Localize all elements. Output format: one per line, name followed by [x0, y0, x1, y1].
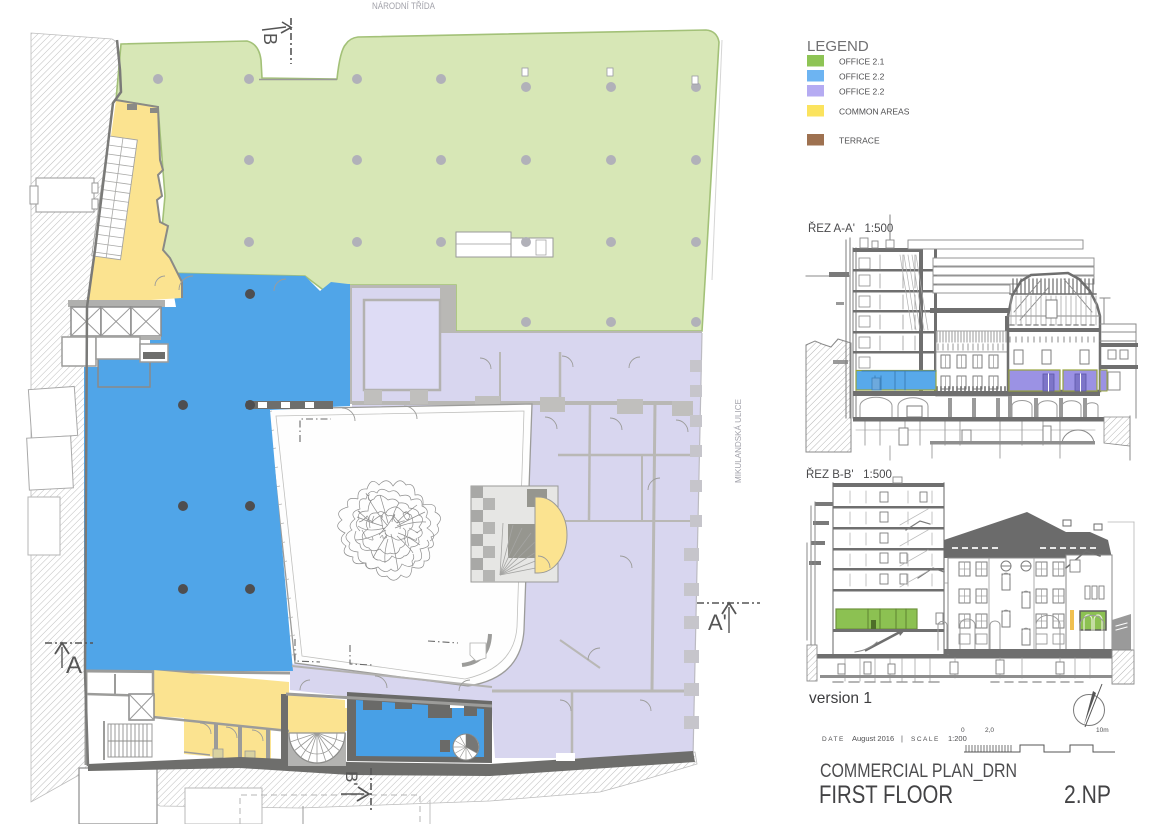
svg-text:COMMERCIAL PLAN_DRN: COMMERCIAL PLAN_DRN — [820, 760, 1017, 782]
svg-text:OFFICE 2.2: OFFICE 2.2 — [839, 87, 885, 97]
svg-text:10m: 10m — [1096, 727, 1109, 734]
svg-text:version 1: version 1 — [809, 690, 872, 707]
svg-text:2,0: 2,0 — [985, 727, 994, 734]
svg-text:FIRST FLOOR: FIRST FLOOR — [819, 781, 953, 809]
svg-text:TERRACE: TERRACE — [839, 136, 880, 146]
svg-text:COMMON AREAS: COMMON AREAS — [839, 107, 910, 117]
svg-text:SCALE: SCALE — [911, 736, 940, 743]
svg-text:|: | — [901, 734, 903, 743]
svg-text:DATE: DATE — [822, 736, 845, 743]
svg-text:1:200: 1:200 — [948, 734, 967, 743]
svg-text:August 2016: August 2016 — [852, 734, 894, 743]
svg-text:ŘEZ B-B' 1:500: ŘEZ B-B' 1:500 — [806, 468, 892, 481]
svg-text:ŘEZ A-A' 1:500: ŘEZ A-A' 1:500 — [808, 222, 893, 235]
svg-text:LEGEND: LEGEND — [807, 38, 869, 55]
svg-text:NÁRODNÍ TŘÍDA: NÁRODNÍ TŘÍDA — [372, 1, 436, 12]
svg-text:A': A' — [708, 610, 727, 635]
svg-text:MIKULANDSKÁ ULICE: MIKULANDSKÁ ULICE — [734, 399, 743, 483]
svg-text:0: 0 — [961, 727, 965, 734]
svg-text:OFFICE 2.1: OFFICE 2.1 — [839, 57, 885, 67]
svg-text:B: B — [260, 33, 280, 45]
svg-text:2.NP: 2.NP — [1064, 781, 1111, 809]
svg-text:A: A — [66, 652, 82, 679]
svg-text:B': B' — [342, 771, 361, 786]
svg-text:OFFICE 2.2: OFFICE 2.2 — [839, 72, 885, 82]
